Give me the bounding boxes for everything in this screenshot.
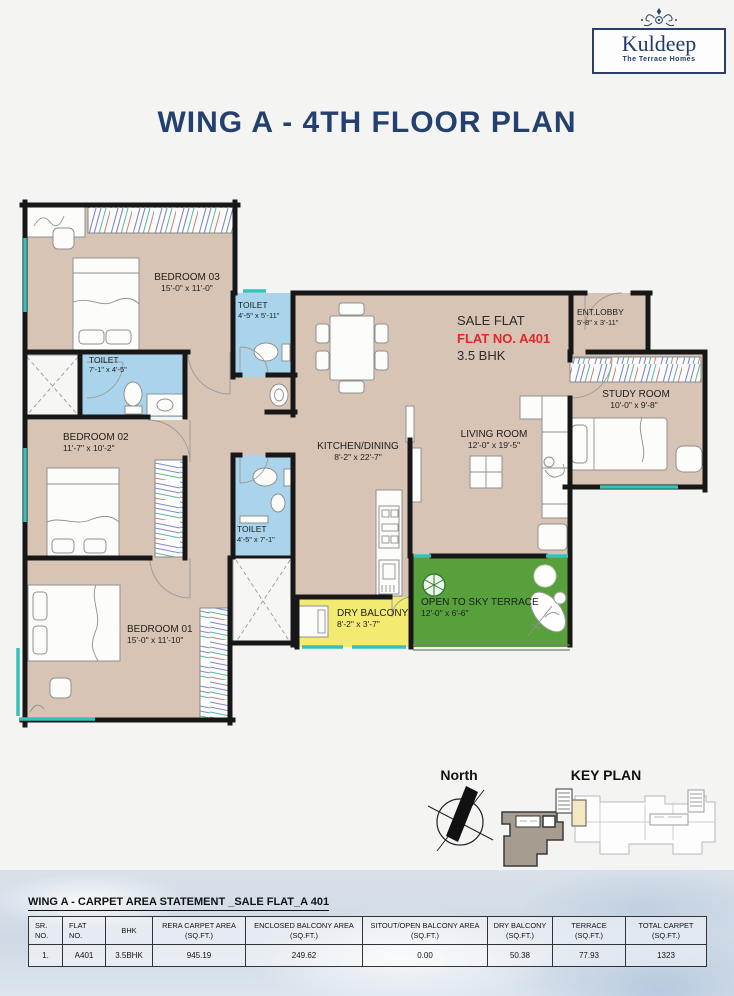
sale-flat-line1: SALE FLAT bbox=[457, 313, 525, 328]
col-total-carpet: TOTAL CARPET(SQ.FT.) bbox=[626, 917, 707, 945]
kitchen-dims: 8'-2" x 22'-7" bbox=[334, 452, 382, 462]
north-label: North bbox=[440, 767, 477, 783]
ent-lobby-dims: 5'-8" x 3'-11" bbox=[577, 318, 619, 327]
toilet-top-dims: 4'-5" x 5'-11" bbox=[238, 311, 280, 320]
cell-rera-carpet: 945.19 bbox=[153, 945, 246, 967]
cell-terrace: 77.93 bbox=[553, 945, 626, 967]
col-flat-no: FLATNO. bbox=[63, 917, 106, 945]
ent-lobby-label: ENT.LOBBY bbox=[577, 307, 624, 317]
cell-dry-balcony: 50.38 bbox=[488, 945, 553, 967]
dry-balcony-label: DRY BALCONY bbox=[337, 608, 409, 619]
key-plan: KEY PLAN bbox=[502, 767, 715, 866]
col-sitout-balcony: SITOUT/OPEN BALCONY AREA(SQ.FT.) bbox=[363, 917, 488, 945]
bedroom02-dims: 11'-7" x 10'-2" bbox=[63, 443, 115, 453]
carpet-area-table: SR.NO. FLATNO. BHK RERA CARPET AREA(SQ.F… bbox=[28, 916, 707, 967]
col-bhk: BHK bbox=[106, 917, 153, 945]
bedroom03-dims: 15'-0" x 11'-0" bbox=[161, 283, 213, 293]
north-arrow: North bbox=[428, 767, 493, 851]
cell-flat-no: A401 bbox=[63, 945, 106, 967]
carpet-table-title: WING A - CARPET AREA STATEMENT _SALE FLA… bbox=[28, 896, 329, 911]
toilet-left-label: TOILET bbox=[89, 355, 119, 365]
terrace-label: OPEN TO SKY TERRACE bbox=[421, 597, 539, 608]
bedroom01-dims: 15'-0" x 11'-10" bbox=[127, 635, 183, 645]
table-header-row: SR.NO. FLATNO. BHK RERA CARPET AREA(SQ.F… bbox=[29, 917, 707, 945]
living-dims: 12'-0" x 19'-5" bbox=[468, 440, 520, 450]
col-dry-balcony: DRY BALCONY(SQ.FT.) bbox=[488, 917, 553, 945]
table-row: 1. A401 3.5BHK 945.19 249.62 0.00 50.38 … bbox=[29, 945, 707, 967]
living-label: LIVING ROOM bbox=[461, 429, 528, 440]
col-rera-carpet: RERA CARPET AREA(SQ.FT.) bbox=[153, 917, 246, 945]
toilet-top-label: TOILET bbox=[238, 300, 268, 310]
floor-plan: BEDROOM 03 15'-0" x 11'-0" TOILET 4'-5" … bbox=[0, 0, 734, 996]
cell-enclosed-balcony: 249.62 bbox=[246, 945, 363, 967]
terrace-dims: 12'-0" x 6'-6" bbox=[421, 608, 469, 618]
cell-sitout-balcony: 0.00 bbox=[363, 945, 488, 967]
cell-bhk: 3.5BHK bbox=[106, 945, 153, 967]
col-enclosed-balcony: ENCLOSED BALCONY AREA(SQ.FT.) bbox=[246, 917, 363, 945]
toilet-mid-label: TOILET bbox=[237, 524, 267, 534]
toilet-left-dims: 7'-1" x 4'-5" bbox=[89, 365, 127, 374]
cell-sr-no: 1. bbox=[29, 945, 63, 967]
study-label: STUDY ROOM bbox=[602, 389, 670, 400]
kitchen-label: KITCHEN/DINING bbox=[317, 441, 399, 452]
bedroom02-label: BEDROOM 02 bbox=[63, 432, 129, 443]
study-dims: 10'-0" x 9'-8" bbox=[610, 400, 658, 410]
bedroom03-label: BEDROOM 03 bbox=[154, 272, 220, 283]
dry-balcony-dims: 8'-2" x 3'-7" bbox=[337, 619, 380, 629]
toilet-mid-dims: 4'-5" x 7'-1" bbox=[237, 535, 275, 544]
sale-flat-number: FLAT NO. A401 bbox=[457, 331, 550, 346]
bedroom01-label: BEDROOM 01 bbox=[127, 624, 193, 635]
col-terrace: TERRACE(SQ.FT.) bbox=[553, 917, 626, 945]
cell-total-carpet: 1323 bbox=[626, 945, 707, 967]
key-plan-label: KEY PLAN bbox=[571, 767, 642, 783]
sale-flat-bhk: 3.5 BHK bbox=[457, 348, 506, 363]
col-sr-no: SR.NO. bbox=[29, 917, 63, 945]
